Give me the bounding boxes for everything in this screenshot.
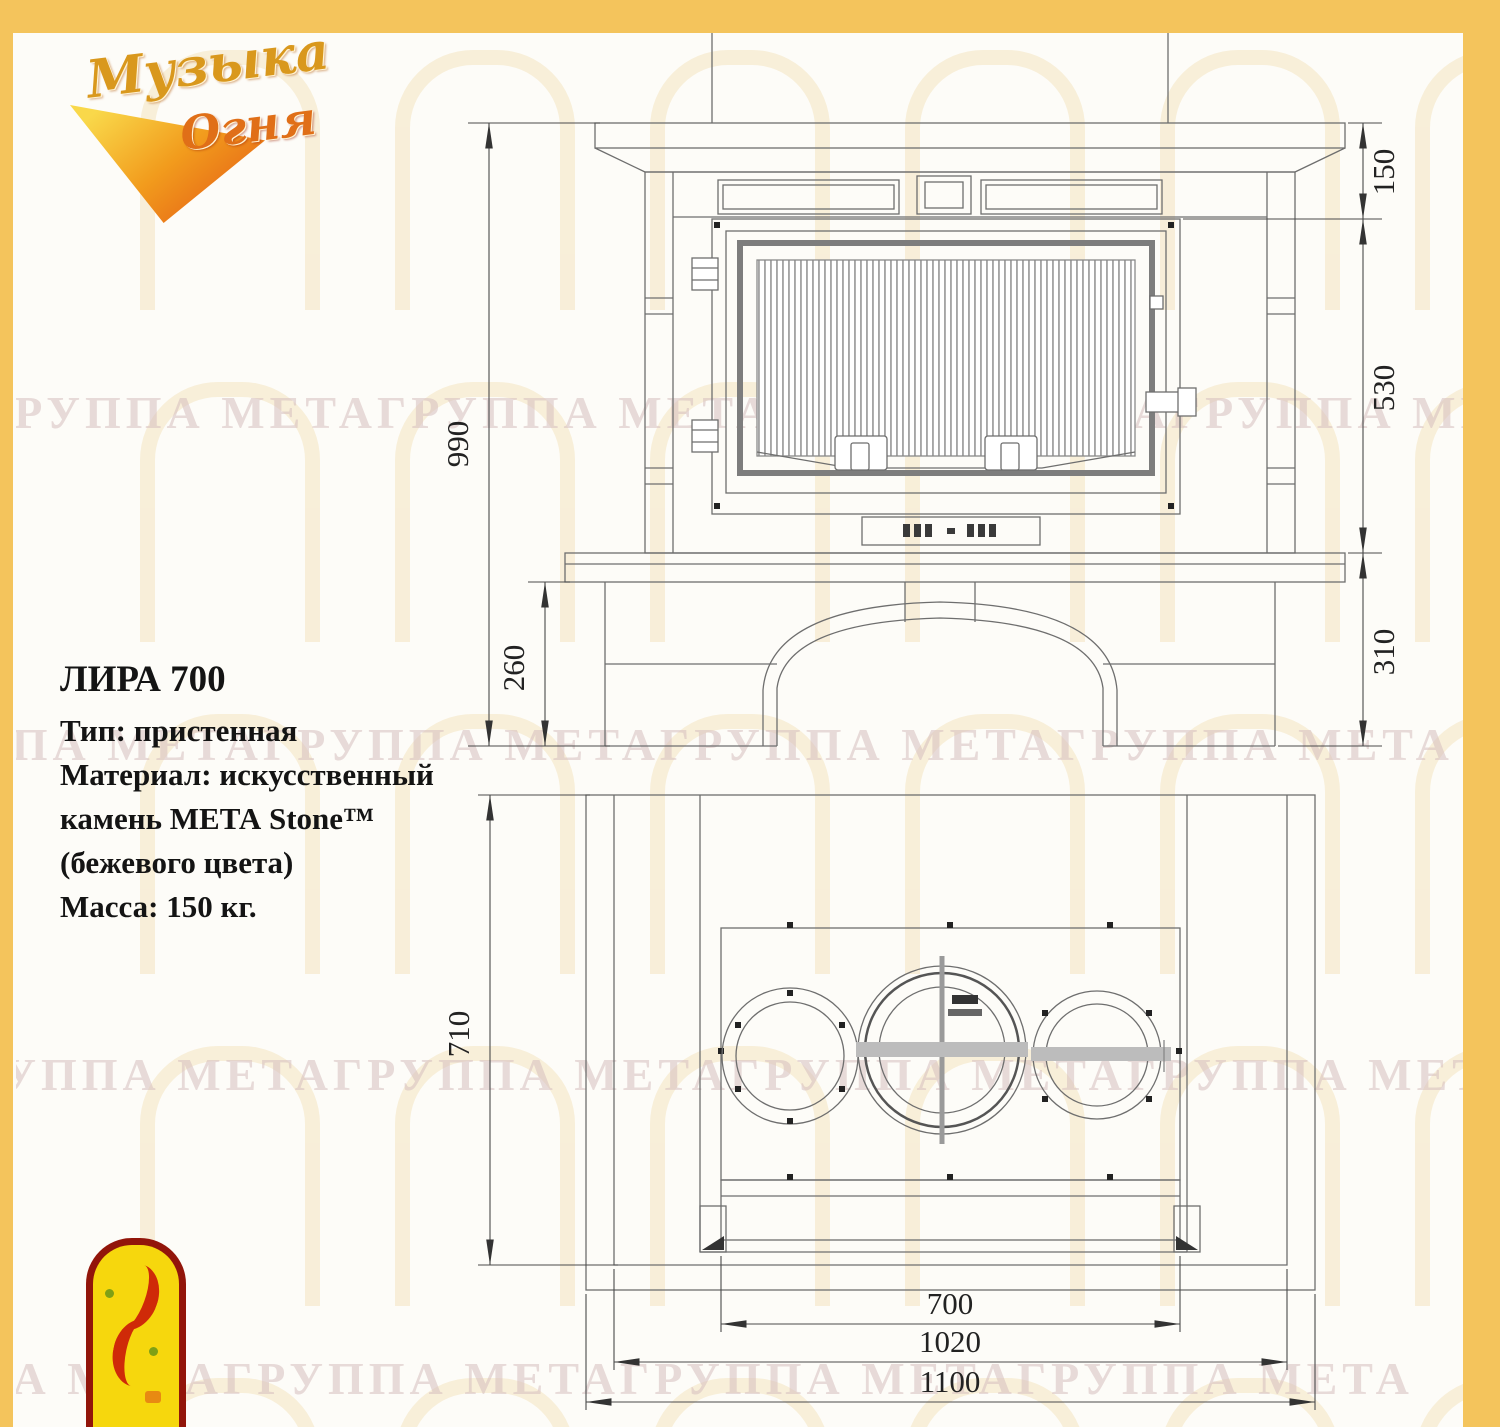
dim-hearth-width: 1020	[919, 1324, 981, 1359]
plan-opening-right	[1031, 991, 1171, 1119]
spec-type: Тип: пристенная	[60, 709, 500, 753]
door-hinges	[692, 258, 718, 452]
drawing-sheet: ГРУППА МЕТАГРУППА МЕТАГРУППА МЕТАГРУППА …	[0, 0, 1500, 1427]
dim-firebox: 530	[1366, 365, 1401, 412]
mantel-shelf	[595, 123, 1345, 148]
front-view	[565, 33, 1345, 746]
frame-top	[0, 0, 1500, 33]
plan-door-bar	[721, 1180, 1180, 1240]
product-title: ЛИРА 700	[60, 658, 500, 701]
dim-total-height: 990	[440, 421, 475, 468]
base-legs	[605, 582, 1275, 746]
hearth-slab	[565, 553, 1345, 582]
spec-weight: Масса: 150 кг.	[60, 885, 500, 929]
door-knob	[1150, 296, 1163, 309]
spec-material-1: Материал: искусственный	[60, 753, 500, 797]
dim-firebox-width: 700	[927, 1286, 974, 1321]
bottom-left-emblem	[86, 1238, 186, 1427]
door-handle	[1146, 388, 1196, 416]
nameplate-stamp	[903, 524, 996, 537]
dim-mantel: 150	[1366, 149, 1401, 196]
dim-depth: 710	[441, 1011, 476, 1058]
plan-inner-slab	[614, 795, 1287, 1265]
frieze-panels	[718, 176, 1162, 214]
chimney-lines	[712, 33, 1168, 123]
grill-door	[757, 260, 1135, 456]
dim-base-left: 260	[496, 645, 531, 692]
product-info: ЛИРА 700 Тип: пристенная Материал: искус…	[60, 658, 500, 929]
brand-word-2: Огня	[177, 91, 319, 161]
brand-logo: Музыка Огня	[52, 33, 352, 208]
plan-opening-left	[722, 988, 858, 1124]
plan-flue-outlet	[856, 956, 1028, 1144]
spec-material-2: камень МЕТА Stone™	[60, 797, 500, 841]
base-arch	[777, 618, 1103, 746]
frame-left	[0, 0, 13, 1427]
dim-overall-width: 1100	[920, 1364, 981, 1399]
plan-view	[586, 795, 1315, 1290]
frame-right	[1463, 0, 1500, 1427]
mantel-crown	[595, 148, 1345, 172]
spec-color: (бежевого цвета)	[60, 841, 500, 885]
dim-base-right: 310	[1366, 629, 1401, 676]
